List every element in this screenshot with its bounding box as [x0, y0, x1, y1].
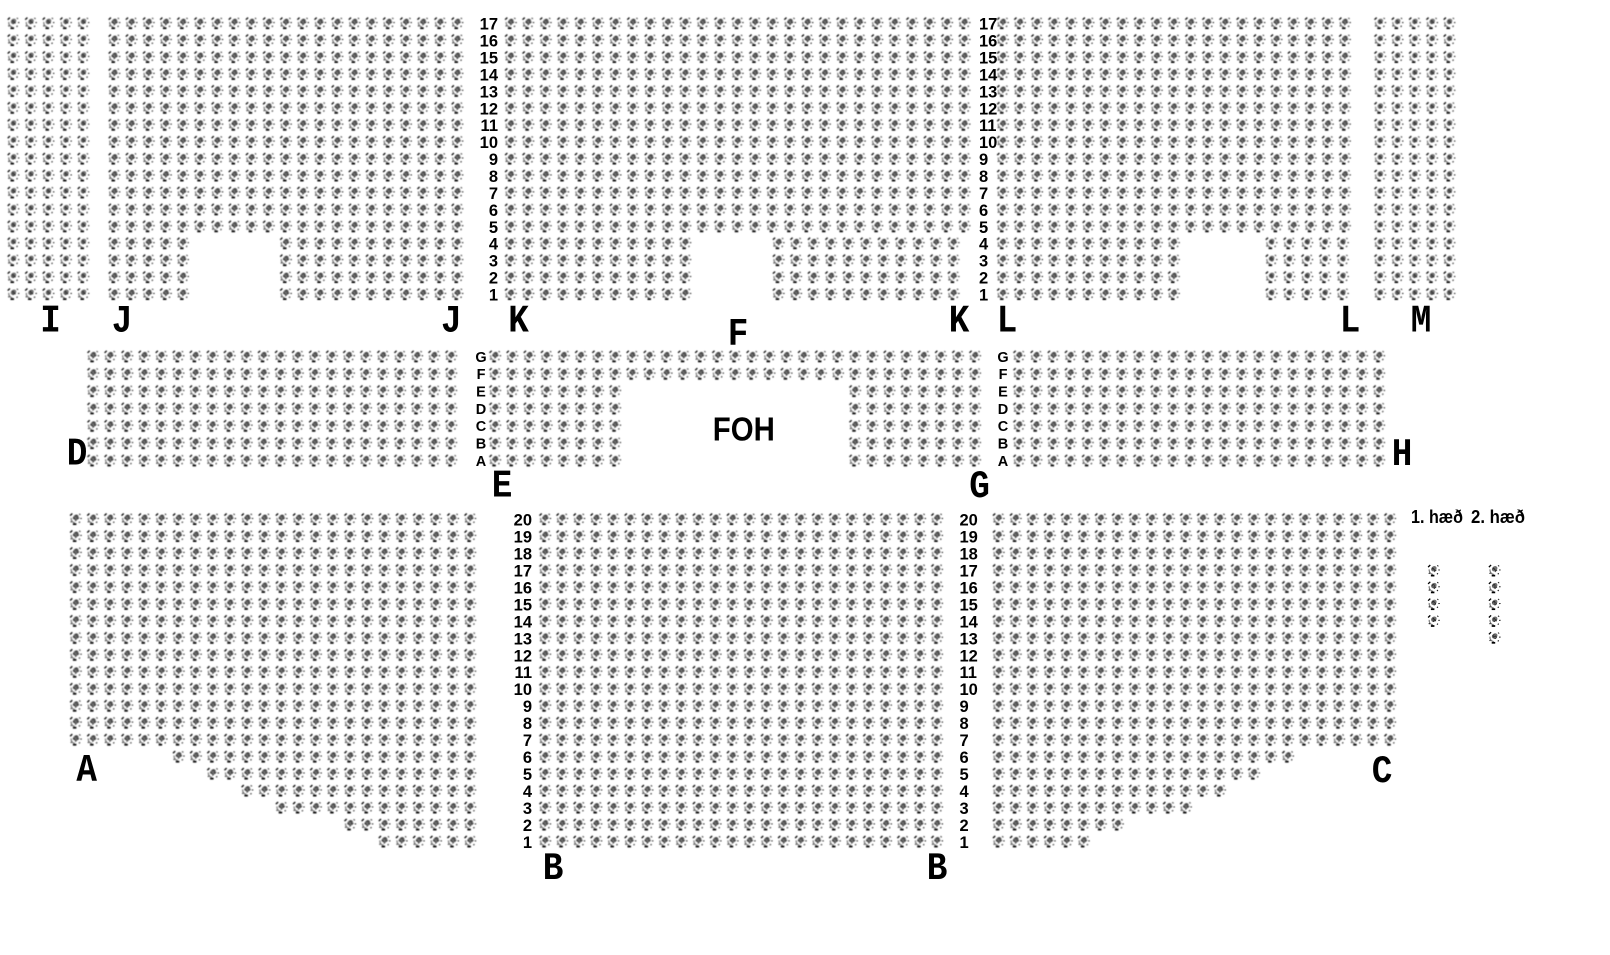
svg-text:14: 14: [979, 66, 998, 84]
svg-text:7: 7: [489, 185, 498, 203]
svg-text:I: I: [40, 299, 61, 344]
svg-text:J: J: [441, 299, 462, 344]
svg-text:1: 1: [489, 286, 498, 304]
svg-text:9: 9: [523, 698, 532, 716]
svg-text:1: 1: [523, 834, 532, 852]
svg-text:7: 7: [523, 732, 532, 750]
svg-text:18: 18: [514, 545, 532, 563]
svg-text:13: 13: [514, 630, 532, 648]
svg-text:3: 3: [489, 253, 498, 271]
svg-text:C: C: [998, 419, 1009, 435]
svg-text:12: 12: [480, 100, 498, 118]
svg-text:B: B: [476, 437, 486, 453]
svg-text:A: A: [476, 454, 487, 470]
svg-text:16: 16: [960, 579, 978, 597]
svg-text:8: 8: [489, 168, 498, 186]
svg-text:15: 15: [480, 49, 498, 67]
svg-text:1: 1: [979, 286, 988, 304]
svg-text:K: K: [508, 299, 529, 344]
svg-text:B: B: [998, 437, 1008, 453]
svg-text:1. hæð: 1. hæð: [1411, 507, 1463, 527]
svg-text:11: 11: [960, 664, 977, 682]
svg-text:4: 4: [523, 783, 533, 801]
svg-text:E: E: [476, 385, 486, 401]
svg-text:C: C: [1372, 750, 1393, 795]
svg-text:2: 2: [979, 270, 988, 288]
svg-text:2: 2: [523, 817, 532, 835]
svg-text:5: 5: [489, 219, 498, 237]
svg-text:G: G: [475, 350, 486, 366]
svg-text:J: J: [112, 299, 133, 344]
svg-text:20: 20: [960, 512, 978, 530]
svg-text:19: 19: [960, 528, 978, 546]
svg-text:15: 15: [514, 596, 532, 614]
svg-text:D: D: [67, 433, 88, 478]
svg-text:D: D: [998, 402, 1008, 418]
svg-text:D: D: [476, 402, 486, 418]
svg-text:2: 2: [960, 817, 969, 835]
svg-text:FOH: FOH: [713, 411, 775, 448]
svg-text:6: 6: [960, 749, 969, 767]
svg-text:18: 18: [960, 545, 978, 563]
svg-text:3: 3: [960, 800, 969, 818]
svg-text:3: 3: [523, 800, 532, 818]
svg-text:F: F: [999, 367, 1008, 383]
svg-text:11: 11: [515, 664, 532, 682]
svg-text:L: L: [1340, 299, 1361, 344]
svg-text:10: 10: [979, 134, 997, 152]
svg-text:12: 12: [960, 647, 978, 665]
svg-text:E: E: [492, 464, 513, 509]
svg-text:F: F: [477, 367, 486, 383]
svg-text:11: 11: [979, 117, 996, 135]
svg-text:13: 13: [960, 630, 978, 648]
svg-text:17: 17: [960, 562, 978, 580]
svg-text:12: 12: [979, 100, 997, 118]
svg-text:17: 17: [979, 16, 997, 34]
svg-text:M: M: [1411, 299, 1432, 344]
svg-text:12: 12: [514, 647, 532, 665]
svg-text:1: 1: [960, 834, 969, 852]
svg-text:4: 4: [979, 236, 989, 254]
svg-text:14: 14: [480, 66, 499, 84]
svg-text:G: G: [997, 350, 1008, 366]
svg-text:F: F: [728, 313, 749, 358]
svg-text:B: B: [543, 847, 564, 892]
svg-text:6: 6: [523, 749, 532, 767]
svg-text:14: 14: [960, 613, 979, 631]
svg-text:9: 9: [979, 151, 988, 169]
svg-text:E: E: [998, 385, 1008, 401]
svg-text:14: 14: [514, 613, 533, 631]
svg-text:20: 20: [514, 512, 532, 530]
svg-text:13: 13: [480, 83, 498, 101]
svg-text:A: A: [76, 749, 97, 794]
svg-text:9: 9: [489, 151, 498, 169]
svg-text:19: 19: [514, 528, 532, 546]
svg-text:16: 16: [480, 33, 498, 51]
svg-text:C: C: [476, 419, 487, 435]
svg-text:A: A: [998, 454, 1009, 470]
svg-text:5: 5: [523, 766, 532, 784]
svg-text:8: 8: [960, 715, 969, 733]
svg-text:15: 15: [960, 596, 978, 614]
svg-text:6: 6: [489, 202, 498, 220]
svg-text:10: 10: [480, 134, 498, 152]
svg-text:6: 6: [979, 202, 988, 220]
svg-text:2: 2: [489, 270, 498, 288]
svg-text:11: 11: [481, 117, 498, 135]
svg-text:10: 10: [960, 681, 978, 699]
svg-text:17: 17: [514, 562, 532, 580]
svg-text:13: 13: [979, 83, 997, 101]
svg-text:16: 16: [514, 579, 532, 597]
svg-text:K: K: [949, 299, 970, 344]
svg-text:4: 4: [960, 783, 970, 801]
svg-text:5: 5: [979, 219, 988, 237]
svg-text:4: 4: [489, 236, 499, 254]
svg-text:7: 7: [960, 732, 969, 750]
svg-text:15: 15: [979, 49, 997, 67]
svg-text:8: 8: [979, 168, 988, 186]
svg-text:7: 7: [979, 185, 988, 203]
svg-text:9: 9: [960, 698, 969, 716]
svg-text:L: L: [997, 299, 1018, 344]
svg-text:17: 17: [480, 16, 498, 34]
svg-text:10: 10: [514, 681, 532, 699]
svg-text:2. hæð: 2. hæð: [1471, 507, 1525, 527]
svg-text:5: 5: [960, 766, 969, 784]
svg-text:8: 8: [523, 715, 532, 733]
svg-text:H: H: [1392, 433, 1413, 478]
svg-text:3: 3: [979, 253, 988, 271]
svg-text:16: 16: [979, 33, 997, 51]
svg-text:B: B: [927, 847, 948, 892]
svg-text:G: G: [969, 465, 990, 510]
